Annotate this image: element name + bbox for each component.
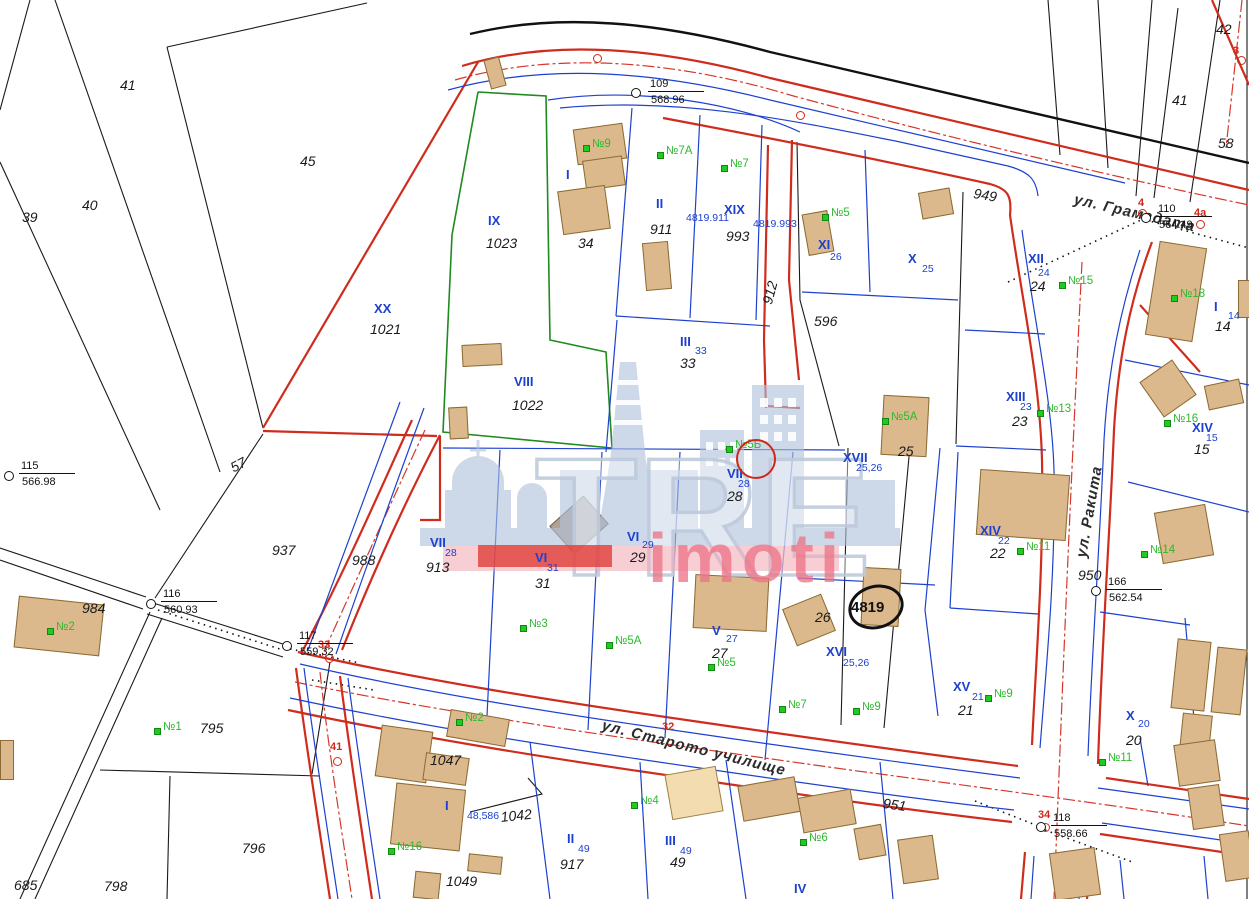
cadastral-map-canvas[interactable]: TRE imoti ул. Грамадатаул. Ракитаул. Ста… (0, 0, 1249, 899)
map-linework (0, 0, 1249, 899)
